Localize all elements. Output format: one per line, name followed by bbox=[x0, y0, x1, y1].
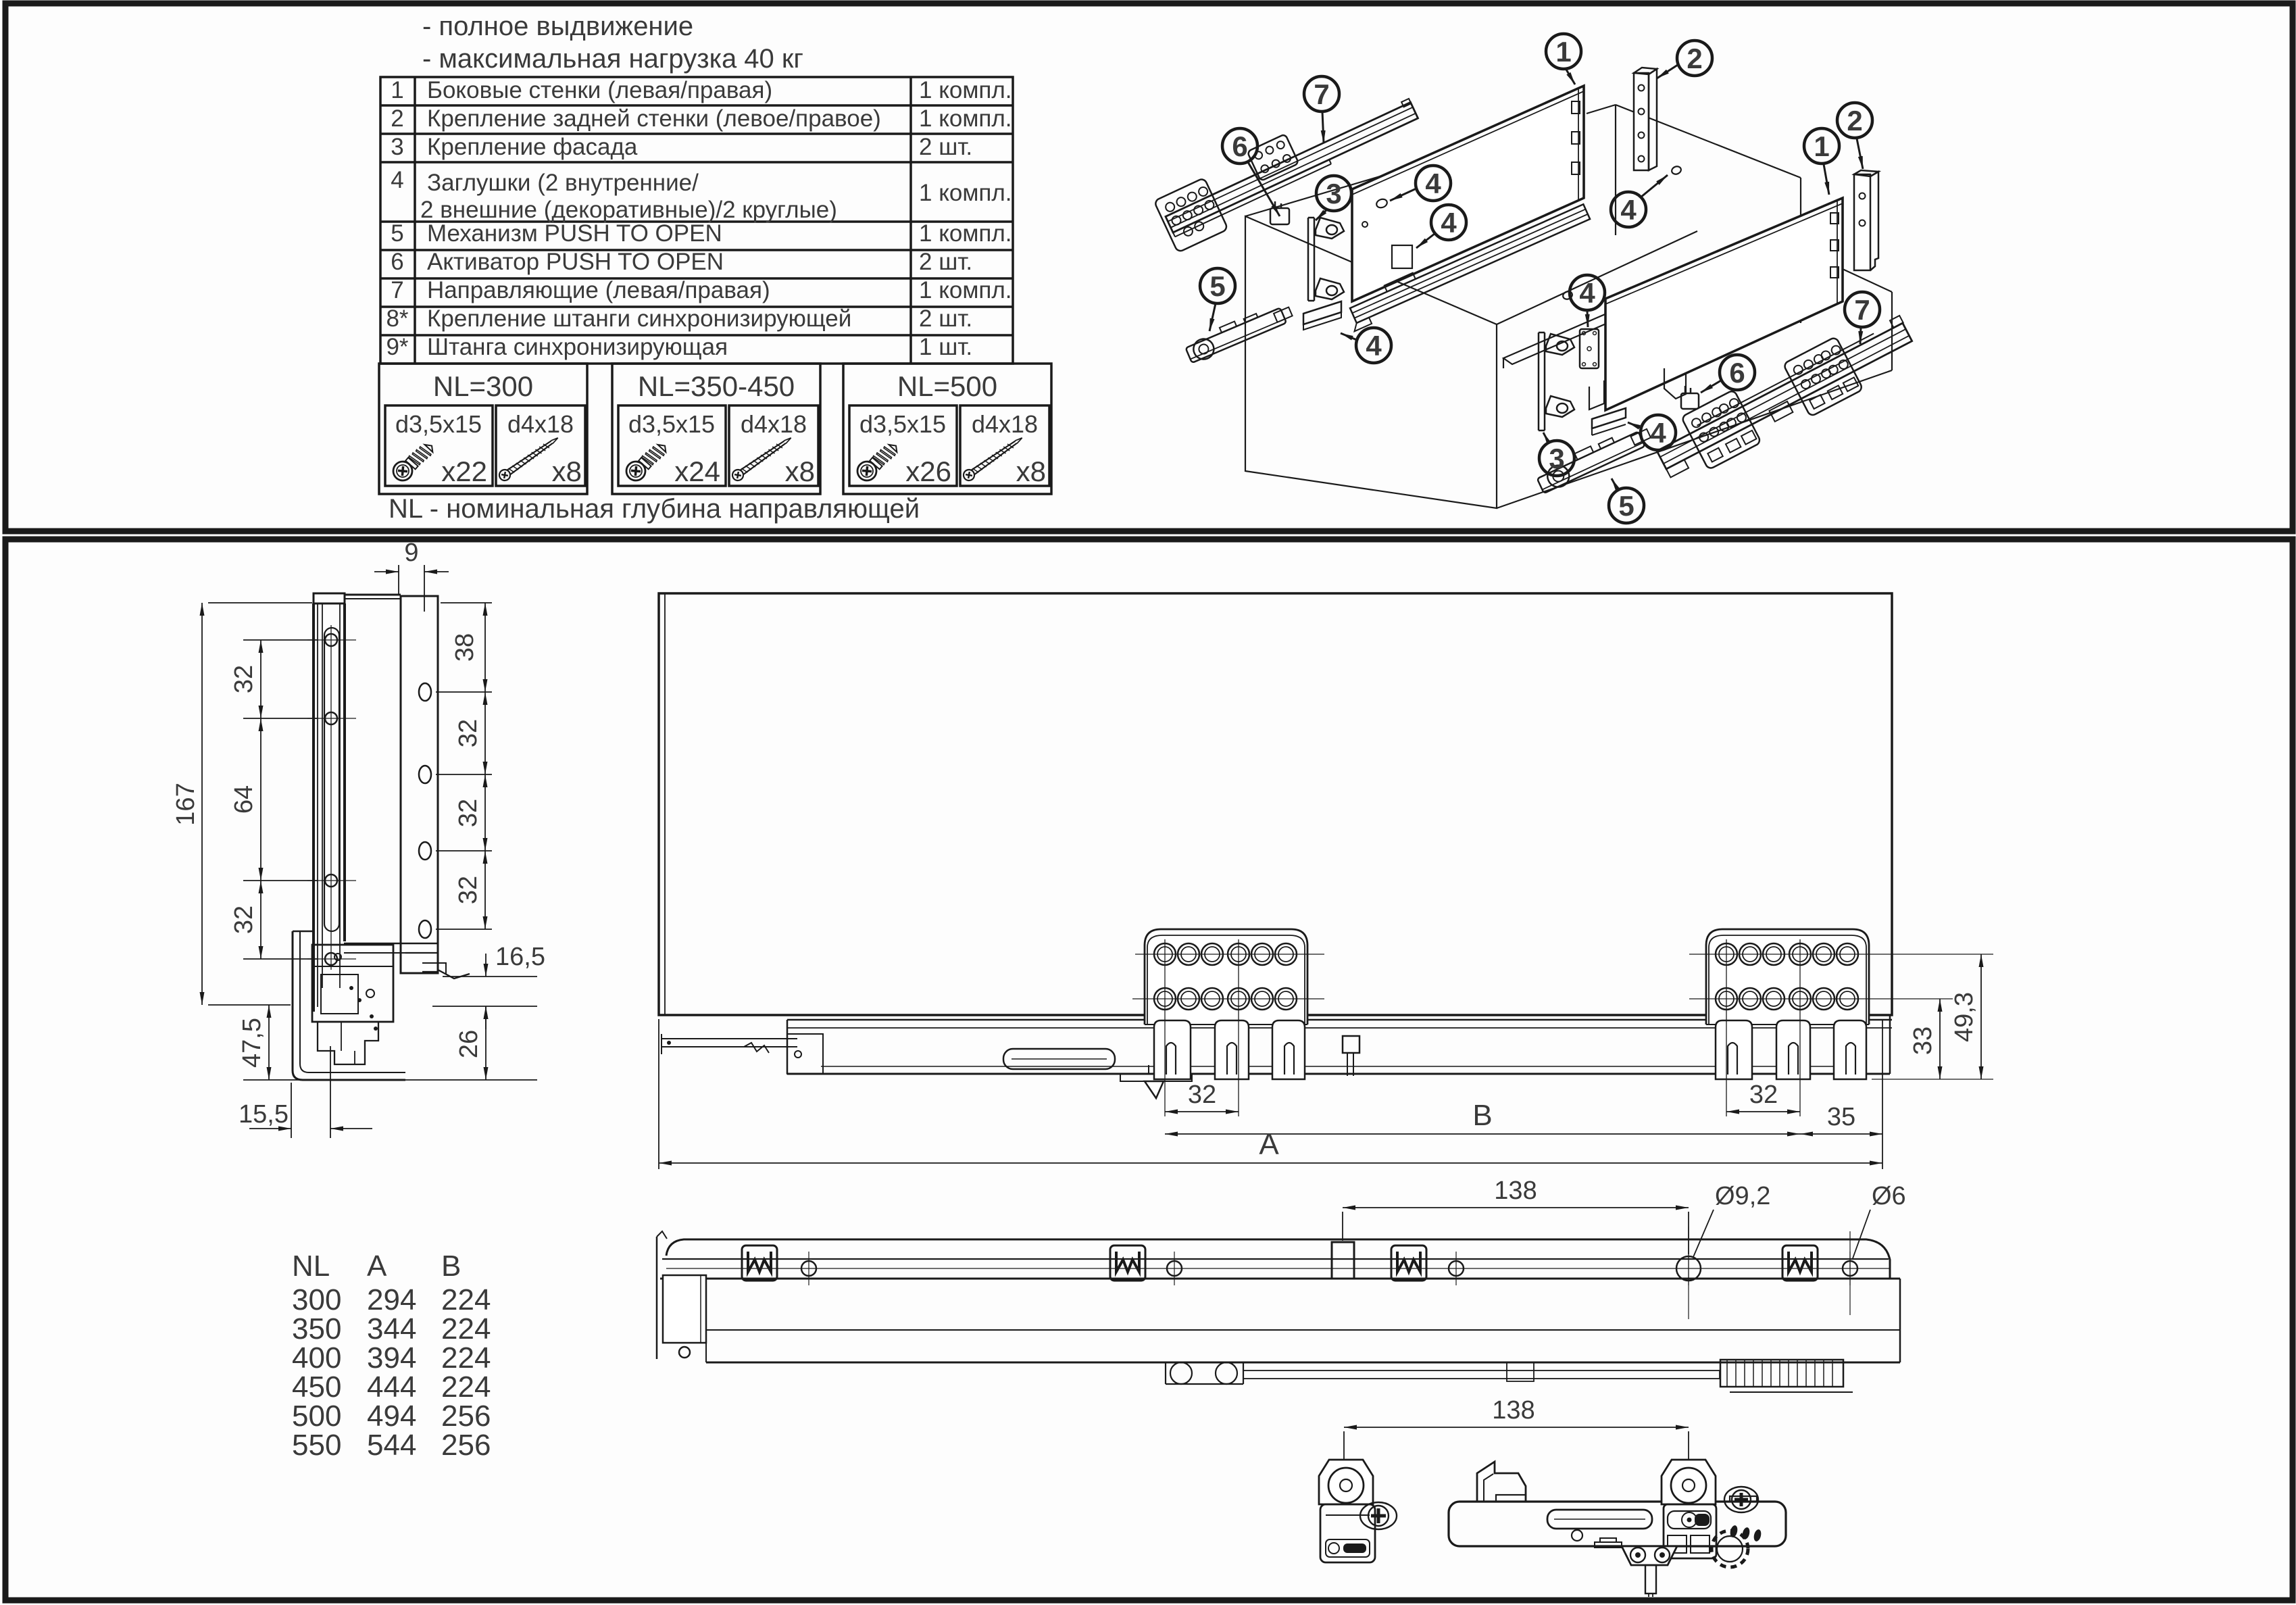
svg-text:167: 167 bbox=[172, 783, 200, 825]
svg-text:3: 3 bbox=[391, 134, 403, 160]
svg-text:- максимальная нагрузка 40 кг: - максимальная нагрузка 40 кг bbox=[422, 44, 803, 74]
svg-text:4: 4 bbox=[1366, 330, 1382, 362]
svg-text:NL - номинальная глубина напра: NL - номинальная глубина направляющей bbox=[389, 494, 920, 524]
svg-text:Активатор PUSH TO OPEN: Активатор PUSH TO OPEN bbox=[427, 249, 724, 275]
svg-text:4: 4 bbox=[1620, 194, 1637, 226]
svg-text:1 шт.: 1 шт. bbox=[919, 334, 972, 360]
svg-text:x26: x26 bbox=[905, 455, 951, 487]
svg-text:Заглушки (2 внутренние/: Заглушки (2 внутренние/ bbox=[427, 170, 699, 196]
svg-text:138: 138 bbox=[1492, 1396, 1534, 1425]
svg-text:350: 350 bbox=[292, 1312, 341, 1345]
svg-text:4: 4 bbox=[1650, 417, 1666, 449]
svg-text:32: 32 bbox=[454, 799, 482, 827]
svg-text:224: 224 bbox=[441, 1371, 491, 1404]
svg-text:1: 1 bbox=[1814, 130, 1829, 162]
svg-text:344: 344 bbox=[367, 1312, 416, 1345]
svg-text:3: 3 bbox=[1326, 178, 1341, 209]
svg-text:A: A bbox=[367, 1250, 387, 1283]
svg-text:550: 550 bbox=[292, 1429, 341, 1462]
svg-text:2: 2 bbox=[391, 105, 403, 132]
svg-text:256: 256 bbox=[441, 1400, 491, 1433]
svg-text:Крепление фасада: Крепление фасада bbox=[427, 134, 638, 160]
svg-text:NL: NL bbox=[292, 1250, 330, 1283]
svg-text:444: 444 bbox=[367, 1371, 416, 1404]
svg-text:x8: x8 bbox=[785, 455, 815, 487]
svg-text:Направляющие (левая/правая): Направляющие (левая/правая) bbox=[427, 277, 770, 303]
svg-text:224: 224 bbox=[441, 1341, 491, 1375]
svg-text:1 компл.: 1 компл. bbox=[919, 277, 1012, 303]
svg-text:15,5: 15,5 bbox=[239, 1100, 289, 1129]
svg-text:6: 6 bbox=[391, 249, 403, 275]
svg-text:500: 500 bbox=[292, 1400, 341, 1433]
svg-text:1 компл.: 1 компл. bbox=[919, 220, 1012, 247]
svg-text:2: 2 bbox=[1847, 105, 1862, 137]
svg-text:544: 544 bbox=[367, 1429, 416, 1462]
svg-text:1 компл.: 1 компл. bbox=[919, 77, 1012, 103]
svg-text:32: 32 bbox=[454, 876, 482, 904]
svg-text:x8: x8 bbox=[1016, 455, 1046, 487]
svg-text:4: 4 bbox=[1579, 277, 1595, 309]
svg-text:5: 5 bbox=[1618, 490, 1634, 522]
svg-text:d4x18: d4x18 bbox=[741, 410, 807, 438]
svg-text:49,3: 49,3 bbox=[1950, 992, 1978, 1042]
svg-text:6: 6 bbox=[1729, 357, 1745, 389]
svg-text:294: 294 bbox=[367, 1283, 416, 1316]
svg-text:B: B bbox=[1472, 1099, 1492, 1132]
svg-text:d4x18: d4x18 bbox=[507, 410, 574, 438]
svg-text:64: 64 bbox=[230, 785, 258, 814]
svg-text:Ø6: Ø6 bbox=[1872, 1182, 1906, 1210]
svg-text:32: 32 bbox=[454, 719, 482, 747]
svg-text:26: 26 bbox=[455, 1030, 483, 1058]
svg-text:2 шт.: 2 шт. bbox=[919, 305, 972, 332]
svg-text:1 компл.: 1 компл. bbox=[919, 105, 1012, 132]
svg-text:Крепление штанги синхронизирую: Крепление штанги синхронизирующей bbox=[427, 305, 851, 332]
svg-text:224: 224 bbox=[441, 1312, 491, 1345]
svg-text:NL=300: NL=300 bbox=[433, 370, 533, 402]
svg-text:7: 7 bbox=[391, 277, 403, 303]
svg-text:4: 4 bbox=[1441, 207, 1457, 239]
svg-text:4: 4 bbox=[391, 167, 403, 193]
svg-text:450: 450 bbox=[292, 1371, 341, 1404]
svg-text:2 шт.: 2 шт. bbox=[919, 134, 972, 160]
svg-text:x8: x8 bbox=[552, 455, 582, 487]
svg-text:47,5: 47,5 bbox=[238, 1018, 266, 1068]
svg-text:d4x18: d4x18 bbox=[972, 410, 1038, 438]
svg-text:2 внешние (декоративные)/2 кру: 2 внешние (декоративные)/2 круглые) bbox=[420, 197, 837, 223]
svg-text:400: 400 bbox=[292, 1341, 341, 1375]
svg-text:494: 494 bbox=[367, 1400, 416, 1433]
svg-text:d3,5x15: d3,5x15 bbox=[395, 410, 482, 438]
svg-text:1 компл.: 1 компл. bbox=[919, 180, 1012, 206]
svg-text:8*: 8* bbox=[386, 305, 408, 332]
svg-text:Ø9,2: Ø9,2 bbox=[1715, 1182, 1770, 1210]
svg-text:5: 5 bbox=[1209, 270, 1225, 302]
svg-text:394: 394 bbox=[367, 1341, 416, 1375]
svg-text:300: 300 bbox=[292, 1283, 341, 1316]
svg-text:1: 1 bbox=[391, 77, 403, 103]
svg-text:d3,5x15: d3,5x15 bbox=[859, 410, 946, 438]
svg-text:NL=350-450: NL=350-450 bbox=[638, 370, 795, 402]
svg-text:7: 7 bbox=[1314, 78, 1329, 110]
svg-text:32: 32 bbox=[230, 665, 258, 693]
svg-text:x24: x24 bbox=[674, 455, 720, 487]
svg-text:9*: 9* bbox=[386, 334, 408, 360]
svg-text:33: 33 bbox=[1909, 1027, 1937, 1055]
svg-text:3: 3 bbox=[1549, 443, 1564, 474]
svg-text:32: 32 bbox=[1749, 1081, 1778, 1109]
svg-text:4: 4 bbox=[1425, 168, 1441, 199]
svg-text:NL=500: NL=500 bbox=[897, 370, 997, 402]
svg-text:224: 224 bbox=[441, 1283, 491, 1316]
svg-text:B: B bbox=[441, 1250, 461, 1283]
svg-text:2: 2 bbox=[1687, 43, 1702, 74]
svg-text:Крепление задней стенки (левое: Крепление задней стенки (левое/правое) bbox=[427, 105, 881, 132]
svg-text:7: 7 bbox=[1854, 294, 1870, 326]
svg-text:138: 138 bbox=[1494, 1177, 1537, 1205]
svg-text:x22: x22 bbox=[441, 455, 487, 487]
svg-text:6: 6 bbox=[1232, 130, 1247, 162]
svg-text:35: 35 bbox=[1827, 1103, 1855, 1131]
svg-text:A: A bbox=[1259, 1128, 1279, 1161]
svg-text:16,5: 16,5 bbox=[495, 943, 545, 971]
svg-text:Боковые стенки (левая/правая): Боковые стенки (левая/правая) bbox=[427, 77, 772, 103]
svg-text:2 шт.: 2 шт. bbox=[919, 249, 972, 275]
svg-text:256: 256 bbox=[441, 1429, 491, 1462]
svg-text:32: 32 bbox=[230, 906, 258, 934]
svg-text:Механизм PUSH TO OPEN: Механизм PUSH TO OPEN bbox=[427, 220, 722, 247]
svg-text:- полное выдвижение: - полное выдвижение bbox=[422, 11, 693, 41]
svg-text:1: 1 bbox=[1555, 36, 1571, 68]
svg-text:d3,5x15: d3,5x15 bbox=[628, 410, 715, 438]
svg-text:9: 9 bbox=[404, 539, 418, 567]
svg-text:Штанга синхронизирующая: Штанга синхронизирующая bbox=[427, 334, 728, 360]
svg-text:5: 5 bbox=[391, 220, 403, 247]
svg-text:32: 32 bbox=[1188, 1081, 1216, 1109]
svg-text:38: 38 bbox=[451, 633, 479, 662]
